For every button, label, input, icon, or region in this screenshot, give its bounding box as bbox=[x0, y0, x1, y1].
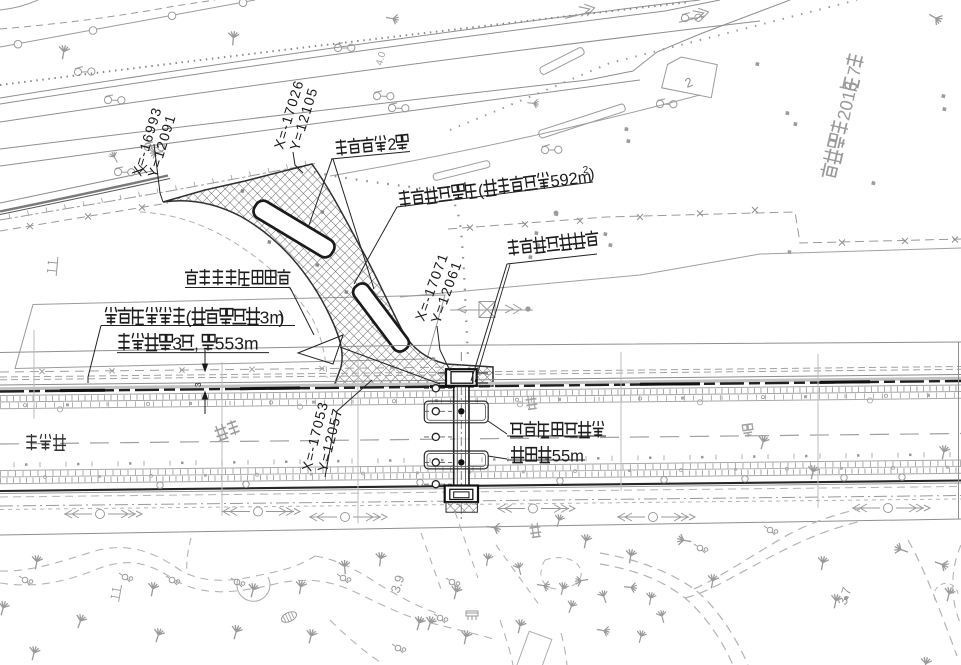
svg-text:55m: 55m bbox=[552, 448, 584, 466]
svg-text:3: 3 bbox=[194, 382, 203, 387]
svg-text:): ) bbox=[279, 308, 285, 328]
svg-text:553m: 553m bbox=[215, 334, 259, 354]
svg-text:,: , bbox=[194, 334, 199, 354]
svg-text:(: ( bbox=[186, 308, 192, 328]
